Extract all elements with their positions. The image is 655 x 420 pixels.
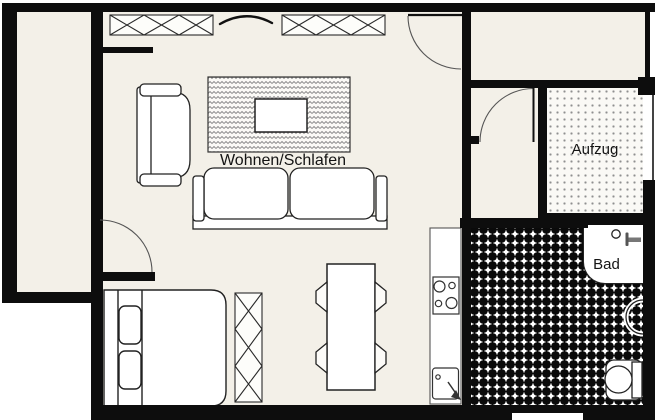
wall-central-vertical [462, 10, 471, 420]
bathroom-label: Bad [583, 257, 630, 274]
wall-right-lower [643, 180, 655, 420]
wall-right-block [638, 77, 655, 95]
wall-west [91, 3, 103, 420]
wall-elevator-left [538, 88, 547, 225]
elevator-label: Aufzug [557, 142, 633, 159]
bathroom-vanity-area [583, 222, 644, 284]
elevator-opening-line [652, 95, 654, 180]
wall-stub-balcony-door [97, 272, 155, 281]
balcony-floor [17, 12, 92, 292]
wall-bathroom-top [460, 218, 588, 228]
wall-right-upper [645, 12, 650, 77]
wall-left-outer [2, 3, 17, 303]
hallway-floor [471, 88, 538, 218]
living-room-label: Wohnen/Schlafen [208, 152, 358, 170]
living-room-floor [102, 12, 462, 405]
wall-balcony-bottom [2, 292, 93, 303]
bottom-wall-notch [512, 413, 583, 420]
corridor-floor [471, 12, 645, 80]
wall-stub-top-left [97, 47, 153, 53]
wall-main-horizontal [462, 80, 655, 88]
door-stop-stub [464, 136, 479, 144]
floor-plan: Wohnen/Schlafen Aufzug Bad [0, 0, 655, 420]
